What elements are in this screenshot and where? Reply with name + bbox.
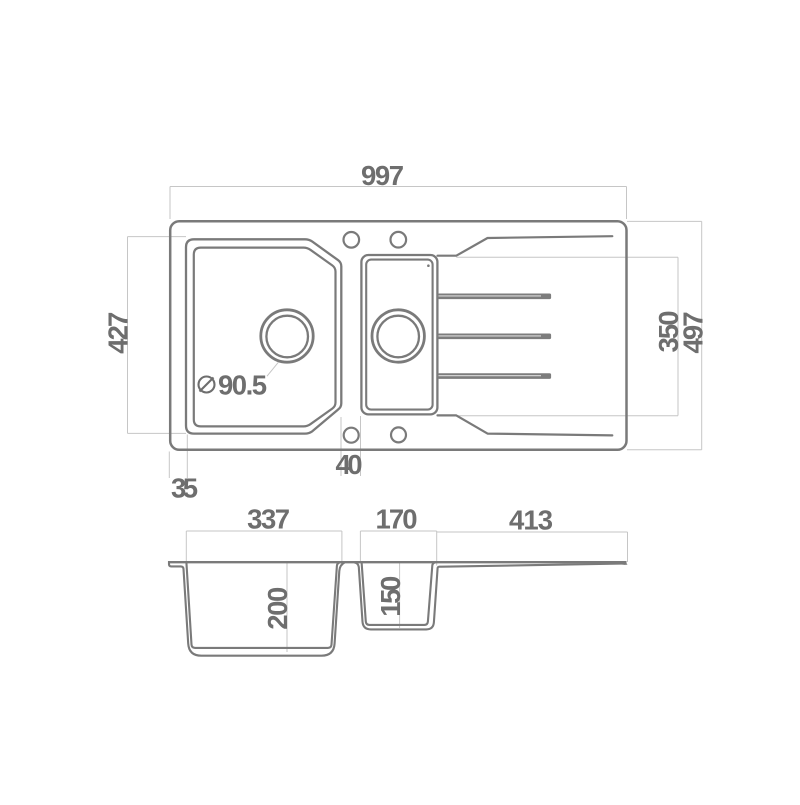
svg-text:35: 35 bbox=[171, 473, 198, 504]
svg-text:40: 40 bbox=[336, 449, 363, 480]
svg-text:413: 413 bbox=[509, 505, 553, 536]
svg-text:497: 497 bbox=[678, 312, 709, 354]
svg-text:170: 170 bbox=[376, 504, 418, 535]
svg-text:200: 200 bbox=[262, 587, 293, 630]
svg-text:150: 150 bbox=[375, 576, 406, 617]
svg-text:337: 337 bbox=[247, 504, 290, 535]
svg-text:90.5: 90.5 bbox=[218, 370, 267, 401]
svg-text:427: 427 bbox=[102, 312, 133, 354]
svg-text:997: 997 bbox=[361, 160, 404, 191]
